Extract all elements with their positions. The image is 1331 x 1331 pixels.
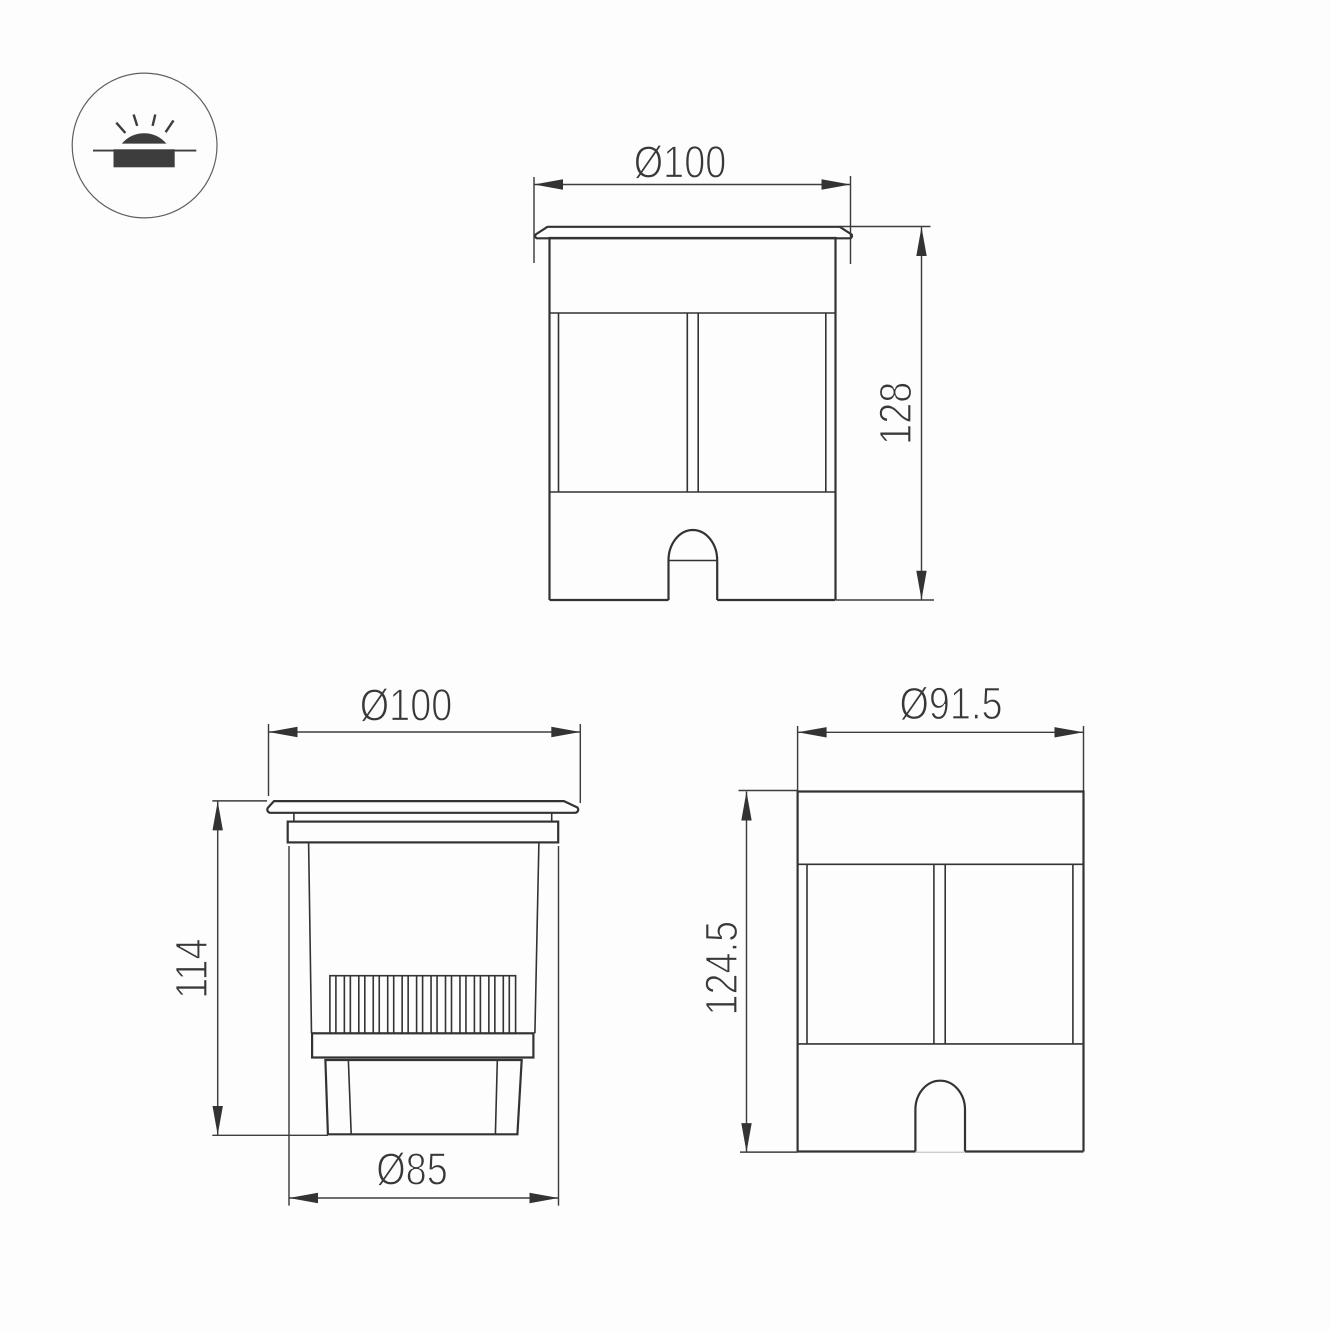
svg-text:Ø100: Ø100 [360, 679, 452, 730]
svg-text:124.5: 124.5 [696, 921, 747, 1016]
svg-text:Ø100: Ø100 [634, 136, 726, 187]
svg-text:114: 114 [166, 938, 217, 998]
svg-text:128: 128 [870, 382, 921, 445]
svg-text:Ø91.5: Ø91.5 [900, 678, 1003, 729]
svg-text:Ø85: Ø85 [376, 1143, 447, 1194]
